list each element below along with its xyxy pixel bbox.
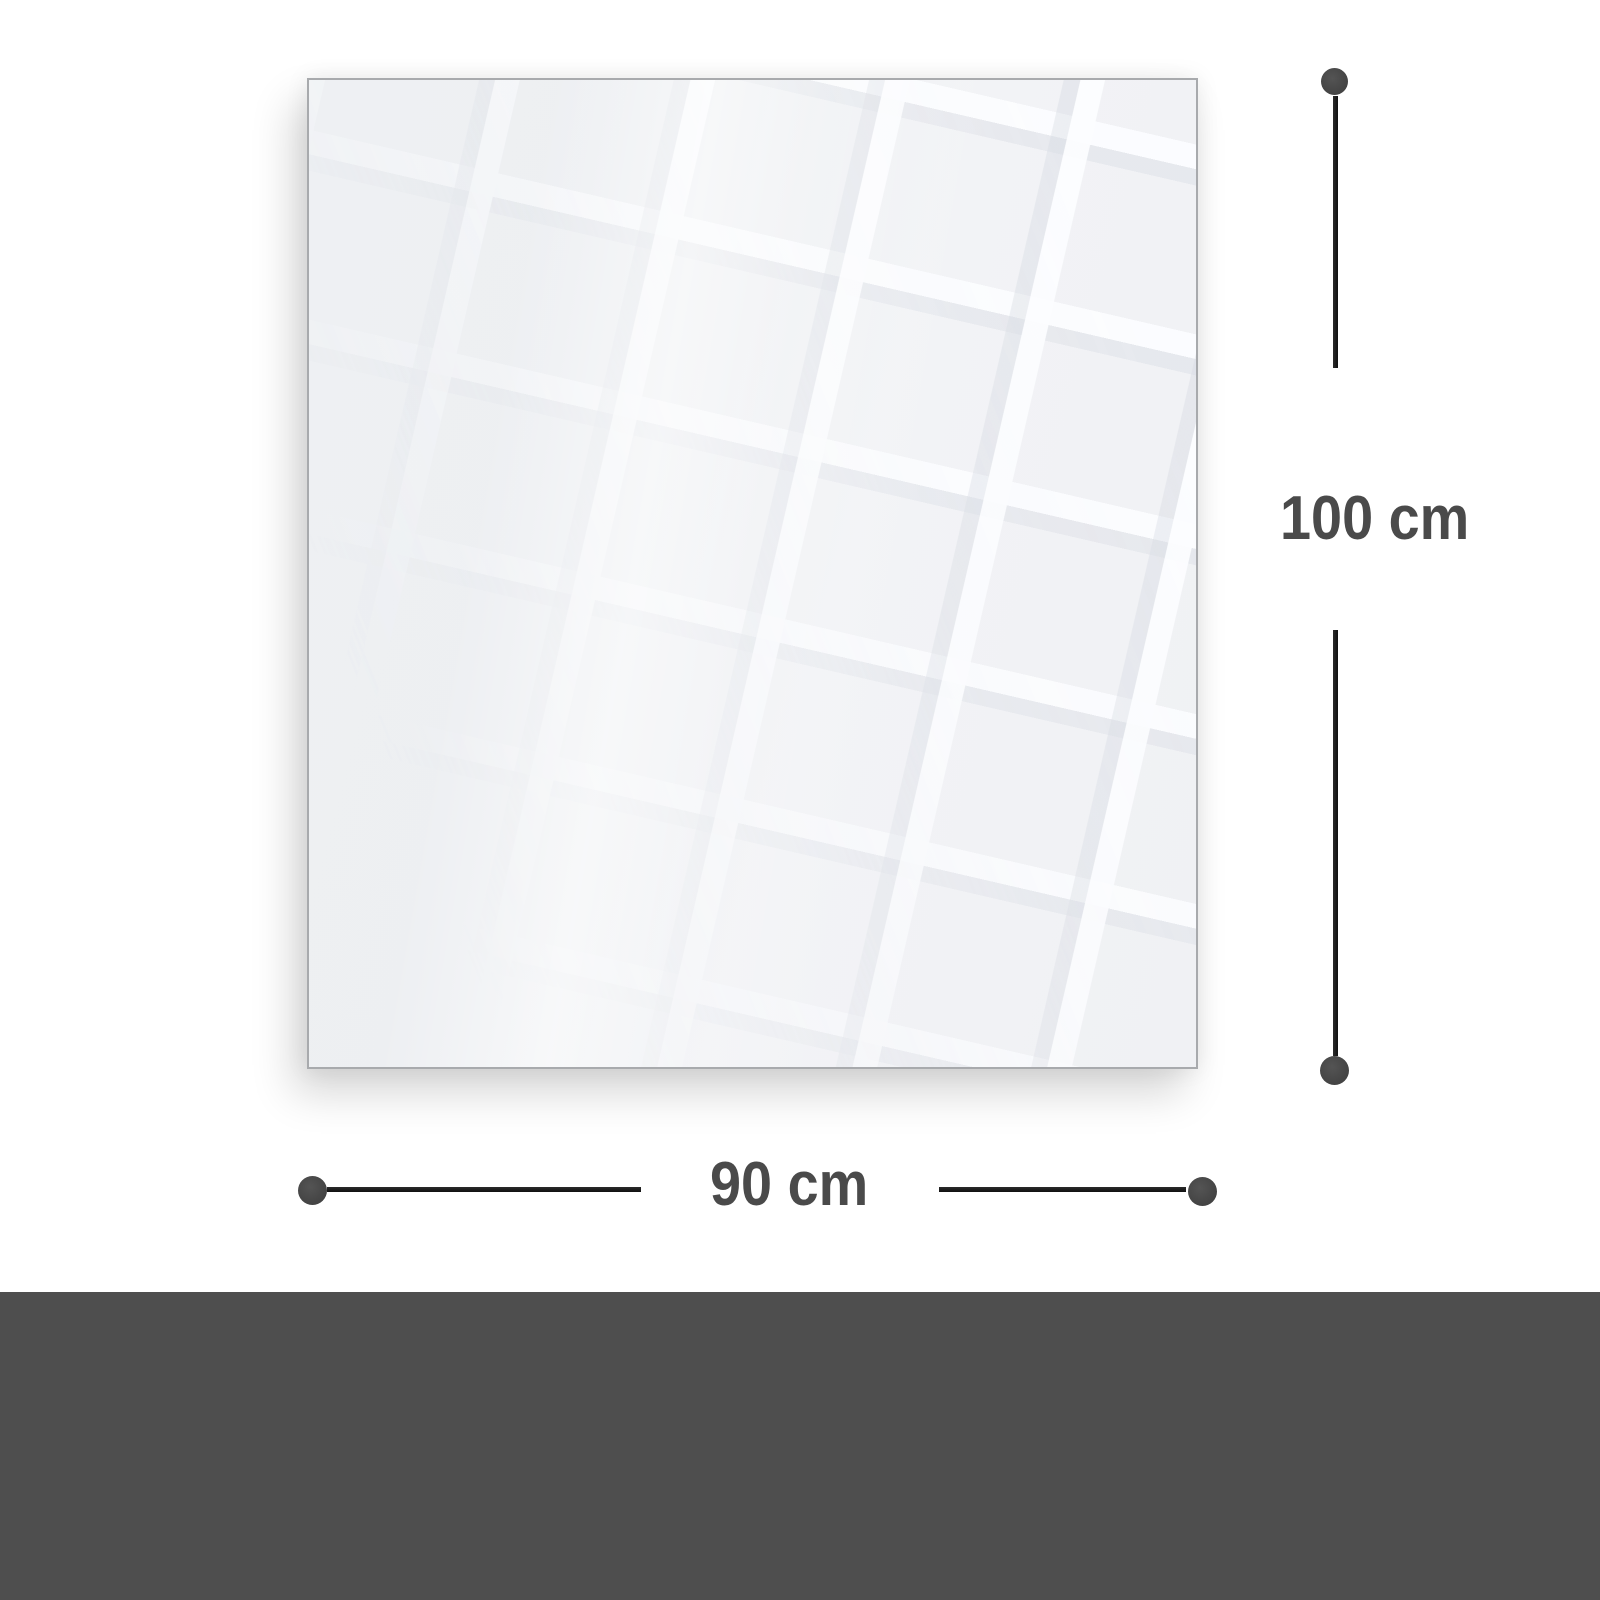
glare-streak <box>307 78 1198 1069</box>
height-dimension-bottom-dot <box>1320 1056 1349 1085</box>
height-dimension-label: 100 cm <box>1280 488 1469 550</box>
height-dimension-lower-segment <box>1333 630 1338 1056</box>
width-dimension-left-dot <box>298 1176 327 1205</box>
product-size-diagram: 100 cm 90 cm Gesamtgrösse | Size 90 x 10… <box>0 0 1600 1600</box>
width-dimension-right-dot <box>1188 1177 1217 1206</box>
width-dimension-right-segment <box>939 1187 1186 1192</box>
height-dimension-top-dot <box>1321 68 1348 95</box>
product-panel <box>307 78 1198 1069</box>
width-dimension-label: 90 cm <box>710 1154 868 1216</box>
size-footer-bar: Gesamtgrösse | Size 90 x 100 cm <box>0 1292 1600 1600</box>
width-dimension-left-segment <box>327 1187 641 1192</box>
height-dimension-upper-segment <box>1333 96 1338 368</box>
